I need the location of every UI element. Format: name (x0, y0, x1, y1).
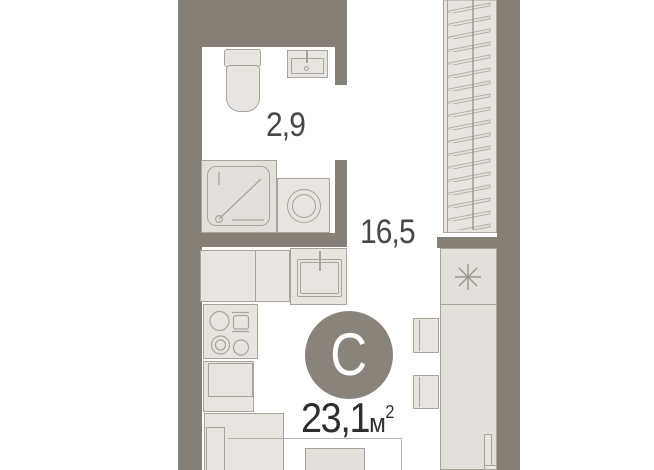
shelf-upper (413, 318, 439, 353)
washing-machine (277, 178, 330, 233)
wardrobe-lower-section (440, 304, 497, 470)
total-area-label: 23,1м2 (301, 394, 394, 442)
wardrobe-marker-section (440, 248, 497, 305)
toilet-bowl (226, 65, 260, 112)
wardrobe-door-foot (484, 465, 497, 470)
total-area-sup: 2 (385, 402, 394, 422)
burner-top-left (210, 312, 229, 331)
kitchen-counter-c-inner (208, 363, 253, 397)
kitchen-counter-c (203, 361, 254, 412)
shelf-lower (413, 375, 439, 409)
wall-right (497, 0, 520, 470)
wall-closet-divider (437, 237, 497, 248)
kitchen-base-unit-door (206, 427, 225, 470)
studio-type-badge: С (305, 311, 393, 399)
wall-top (178, 0, 347, 47)
kitchen-faucet-line (319, 251, 321, 271)
closet-hatch-pattern (444, 0, 496, 230)
burner-bottom-left-inner (216, 340, 226, 350)
shelf-lower-door-line (419, 377, 420, 407)
bedside-table (305, 448, 365, 470)
washer-drum-inner (292, 194, 316, 218)
floor-plan: 2,9 16,5 С 23,1м2 (0, 0, 654, 470)
total-area-unit: м (369, 408, 385, 438)
bathroom-faucet-dot (304, 66, 309, 71)
burner-bottom-right (234, 340, 249, 355)
wall-bathroom-right-upper (335, 47, 347, 85)
stove (203, 304, 258, 359)
kitchen-counter-a (200, 250, 256, 302)
shower-marks (202, 161, 278, 234)
bathroom-area-label: 2,9 (266, 106, 305, 145)
wall-left (178, 47, 202, 470)
burner-top-right (234, 316, 249, 330)
shelf-upper-door-line (419, 320, 420, 351)
shower-tray (201, 160, 277, 233)
living-area-label: 16,5 (360, 213, 415, 252)
asterisk-icon (441, 249, 496, 304)
studio-type-letter: С (331, 325, 368, 385)
burner-bottom-left-outer (212, 336, 230, 354)
kitchen-counter-b (255, 250, 290, 302)
bathroom-faucet-line (306, 50, 308, 63)
wall-bathroom-bottom (202, 233, 347, 247)
stove-burners (204, 305, 257, 358)
closet-hatched (443, 0, 497, 233)
shower-drain-diagonal (219, 179, 261, 219)
total-area-value: 23,1 (301, 394, 369, 441)
kitchen-sink-unit (290, 248, 347, 305)
